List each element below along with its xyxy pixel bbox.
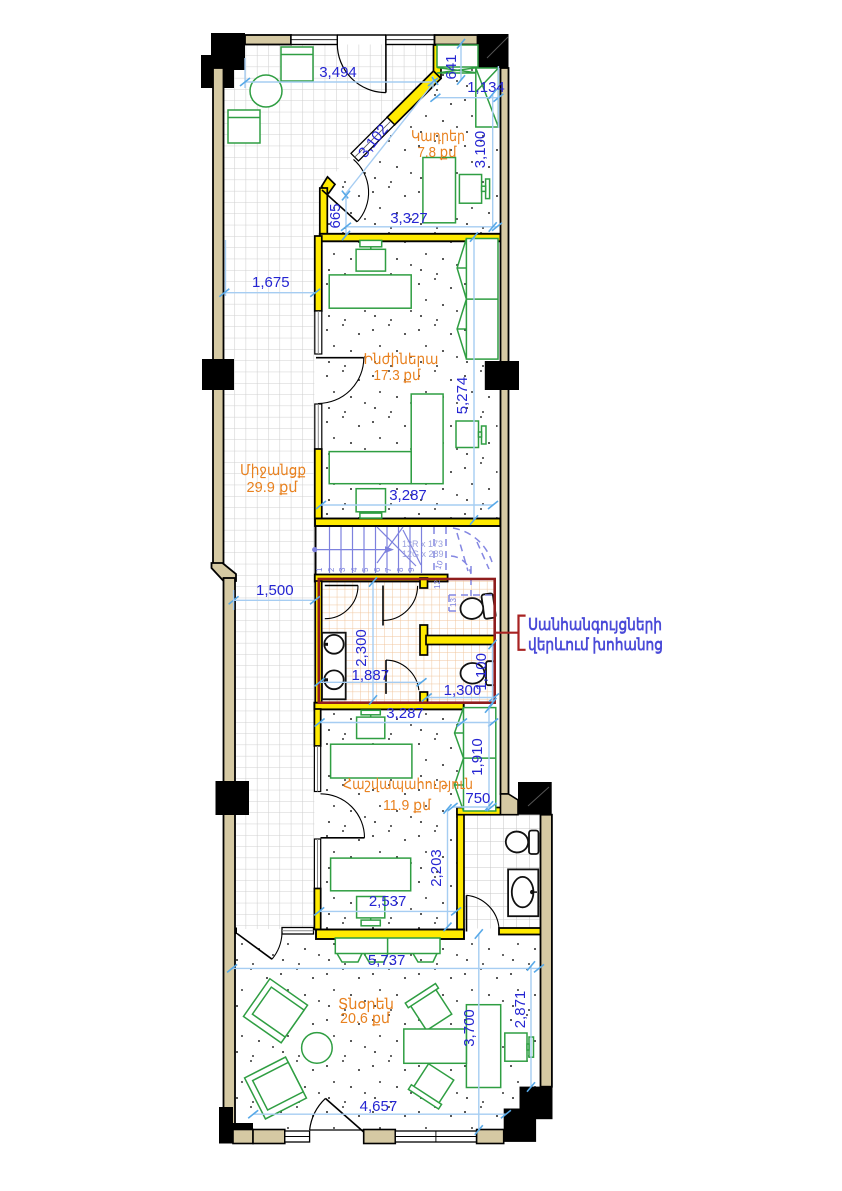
svg-text:1,887: 1,887 bbox=[352, 667, 390, 684]
svg-text:Հաշվապահություն: Հաշվապահություն bbox=[343, 776, 473, 793]
svg-text:3,100: 3,100 bbox=[472, 131, 489, 169]
svg-text:8: 8 bbox=[396, 567, 405, 572]
svg-text:7.8 քմ: 7.8 քմ bbox=[418, 144, 457, 161]
svg-text:3,287: 3,287 bbox=[386, 705, 424, 722]
svg-text:1,100: 1,100 bbox=[473, 653, 490, 691]
svg-text:3,700: 3,700 bbox=[461, 1009, 478, 1047]
svg-text:29.9 քմ: 29.9 քմ bbox=[247, 479, 298, 496]
svg-text:Կադրեր: Կադրեր bbox=[411, 128, 465, 145]
svg-text:17.3 քմ: 17.3 քմ bbox=[374, 367, 421, 384]
svg-text:3,287: 3,287 bbox=[389, 487, 427, 504]
svg-text:12G x 289: 12G x 289 bbox=[402, 549, 444, 559]
svg-text:13: 13 bbox=[449, 598, 458, 607]
svg-text:1,910: 1,910 bbox=[469, 738, 486, 776]
svg-text:3: 3 bbox=[338, 567, 347, 572]
svg-text:641: 641 bbox=[443, 54, 460, 79]
svg-text:վերևում խոհանոց: վերևում խոհանոց bbox=[528, 636, 663, 655]
svg-text:2,300: 2,300 bbox=[353, 629, 370, 667]
svg-text:2,871: 2,871 bbox=[512, 991, 529, 1029]
svg-text:20.6 քմ: 20.6 քմ bbox=[340, 1010, 390, 1027]
svg-text:665: 665 bbox=[327, 203, 344, 228]
svg-text:7: 7 bbox=[384, 567, 393, 572]
svg-text:13R x 173: 13R x 173 bbox=[402, 539, 443, 549]
svg-text:2,203: 2,203 bbox=[428, 849, 445, 887]
svg-text:9: 9 bbox=[407, 567, 416, 572]
svg-text:1,134: 1,134 bbox=[467, 79, 505, 96]
svg-text:12: 12 bbox=[433, 580, 442, 589]
svg-text:5,274: 5,274 bbox=[454, 377, 471, 415]
svg-text:5,737: 5,737 bbox=[368, 952, 406, 969]
svg-text:3,494: 3,494 bbox=[319, 64, 357, 81]
svg-text:1,500: 1,500 bbox=[256, 582, 294, 599]
svg-text:2: 2 bbox=[327, 567, 336, 572]
svg-text:4,657: 4,657 bbox=[360, 1098, 398, 1115]
svg-text:2,537: 2,537 bbox=[369, 893, 407, 910]
svg-text:5: 5 bbox=[361, 567, 370, 572]
svg-text:1: 1 bbox=[315, 567, 324, 572]
svg-text:11.9 քմ: 11.9 քմ bbox=[383, 797, 431, 814]
svg-text:1,675: 1,675 bbox=[252, 274, 290, 291]
svg-text:750: 750 bbox=[465, 790, 490, 807]
svg-text:Սանհանգույցների: Սանհանգույցների bbox=[528, 616, 662, 635]
svg-text:6: 6 bbox=[373, 567, 382, 572]
svg-text:3,327: 3,327 bbox=[390, 210, 428, 227]
svg-text:4: 4 bbox=[350, 567, 359, 572]
svg-text:Միջանցք: Միջանցք bbox=[240, 462, 306, 479]
svg-text:Ինժիներա: Ինժիներա bbox=[364, 351, 439, 368]
